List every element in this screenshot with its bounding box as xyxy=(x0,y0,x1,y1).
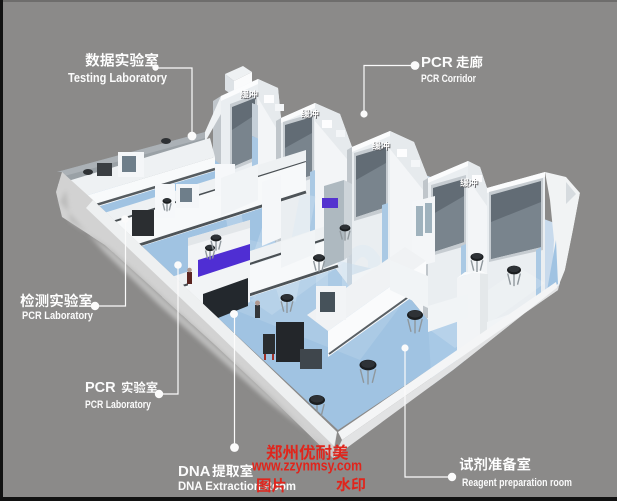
svg-text:PCR Laboratory: PCR Laboratory xyxy=(22,310,94,322)
svg-text:PCR: PCR xyxy=(85,380,116,396)
svg-text:PCR: PCR xyxy=(421,54,453,71)
svg-text:PCR Corridor: PCR Corridor xyxy=(421,73,477,85)
svg-text:Reagent preparation room: Reagent preparation room xyxy=(462,477,572,489)
svg-text:DNA: DNA xyxy=(178,463,211,480)
svg-text:PCR Laboratory: PCR Laboratory xyxy=(85,399,152,411)
svg-text:Testing Laboratory: Testing Laboratory xyxy=(68,71,167,85)
svg-text:www.zzynmsy.com: www.zzynmsy.com xyxy=(251,458,362,475)
